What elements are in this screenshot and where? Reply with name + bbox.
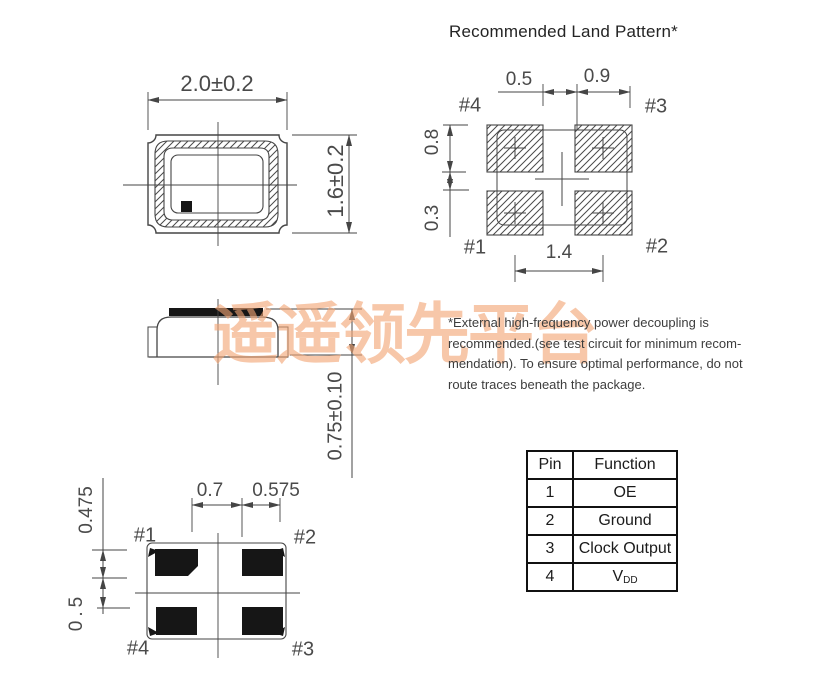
datasheet-drawing-page: 遥遥领先平台 Recommended Land Pattern* *Extern… bbox=[0, 0, 816, 690]
bottom-view-drawing bbox=[92, 478, 300, 658]
pin-number: 4 bbox=[527, 563, 573, 591]
lid-bar bbox=[169, 308, 263, 316]
vdd-subscript: DD bbox=[623, 575, 637, 586]
dim-side-height: 0.75±0.10 bbox=[325, 372, 348, 461]
pin-label-bv-1: #1 bbox=[134, 525, 156, 548]
decoupling-note: *External high-frequency power decouplin… bbox=[448, 313, 784, 395]
dim-top-width: 2.0±0.2 bbox=[180, 71, 253, 97]
pin-label-lp-4: #4 bbox=[459, 95, 481, 118]
pad2 bbox=[242, 549, 283, 576]
function-column-header: Function bbox=[573, 451, 677, 479]
pin-label-lp-1: #1 bbox=[464, 237, 486, 260]
table-row: 1 OE bbox=[527, 479, 677, 507]
pin-label-bv-3: #3 bbox=[292, 639, 314, 662]
dim-bv-pad-h: 0.475 bbox=[76, 486, 98, 534]
table-row: 4 VDD bbox=[527, 563, 677, 591]
dim-lp-gap-x: 0.5 bbox=[506, 69, 532, 91]
dim-top-height: 1.6±0.2 bbox=[323, 144, 349, 217]
pin-label-bv-2: #2 bbox=[294, 527, 316, 550]
pin-number: 1 bbox=[527, 479, 573, 507]
pad4 bbox=[156, 607, 197, 635]
pin-function: VDD bbox=[573, 563, 677, 591]
top-view-drawing bbox=[123, 92, 357, 246]
dim-lp-gap-y: 0.3 bbox=[422, 205, 444, 231]
pin-column-header: Pin bbox=[527, 451, 573, 479]
pad1 bbox=[155, 549, 198, 576]
pin-function: OE bbox=[573, 479, 677, 507]
pin-function: Ground bbox=[573, 507, 677, 535]
table-row: 2 Ground bbox=[527, 507, 677, 535]
pin-function-table: Pin Function 1 OE 2 Ground 3 Clock Outpu… bbox=[526, 450, 678, 592]
land-pattern-title: Recommended Land Pattern* bbox=[449, 22, 678, 42]
dim-bv-pad-w: 0.7 bbox=[197, 480, 223, 502]
dim-bv-gap-y: 0.5 bbox=[66, 593, 88, 631]
pin-number: 3 bbox=[527, 535, 573, 563]
table-header-row: Pin Function bbox=[527, 451, 677, 479]
pin-label-bv-4: #4 bbox=[127, 638, 149, 661]
dim-bv-edge: 0.575 bbox=[252, 480, 300, 502]
pin-label-lp-2: #2 bbox=[646, 236, 668, 259]
pad3 bbox=[242, 607, 283, 635]
table-row: 3 Clock Output bbox=[527, 535, 677, 563]
pin-number: 2 bbox=[527, 507, 573, 535]
dim-lp-pad-h: 0.8 bbox=[422, 129, 444, 155]
dim-lp-pitch: 1.4 bbox=[546, 242, 572, 264]
pin-function: Clock Output bbox=[573, 535, 677, 563]
dim-lp-pad-w: 0.9 bbox=[584, 66, 610, 88]
pin-label-lp-3: #3 bbox=[645, 96, 667, 119]
pin1-mark bbox=[181, 201, 192, 212]
